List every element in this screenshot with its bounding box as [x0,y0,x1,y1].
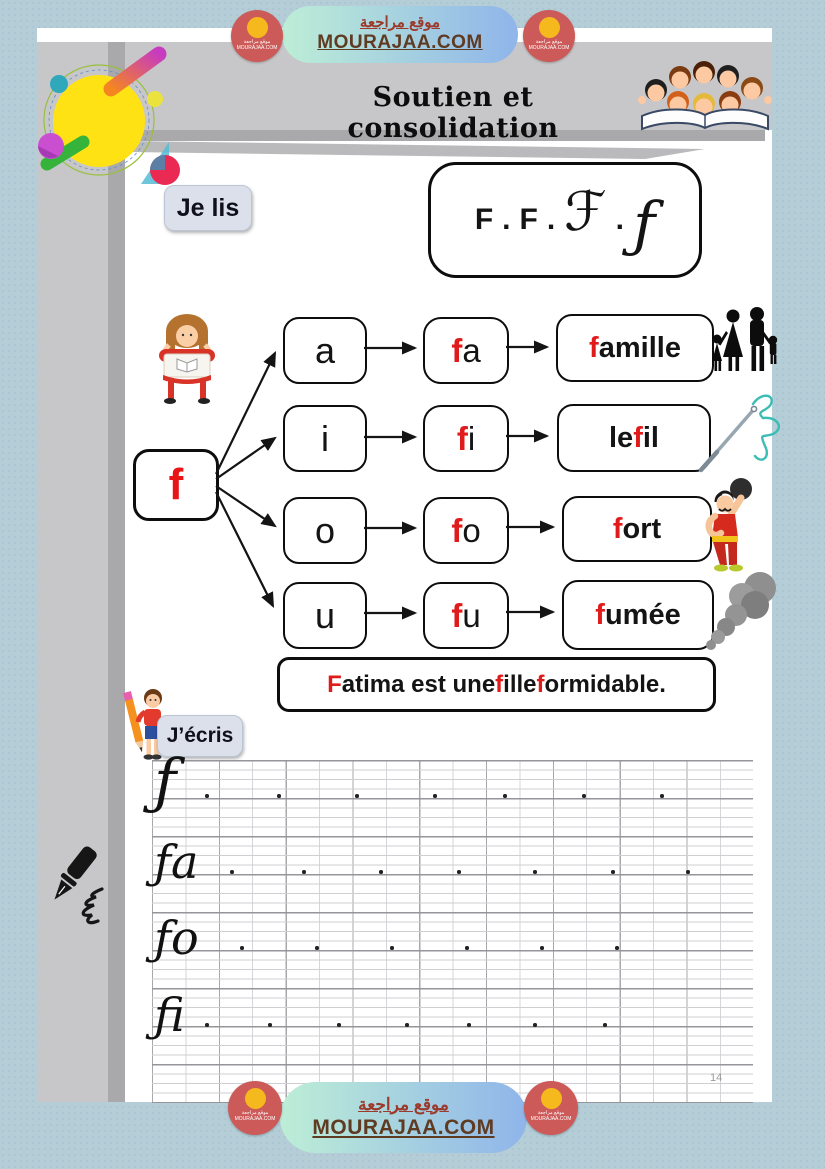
text-segment: f [451,512,462,550]
section-label-je-lis: Je lis [164,185,252,231]
trace-dot [660,794,664,798]
practice-letter-f: ƒ [154,752,176,812]
strongman-lifting-weight-icon [697,476,763,574]
text-segment: f [633,422,643,455]
logo-sun-icon [247,17,268,38]
text-segment: i [468,420,475,458]
triangle-circle-decoration-icon [139,140,184,188]
vowel-box-o: o [283,497,367,564]
trace-dot [405,1023,409,1027]
site-link[interactable]: MOURAJAA.COM [312,1115,494,1140]
text-segment: o [462,512,480,550]
trace-dot [540,946,544,950]
site-logo-badge: موقع مراجعة MOURAJAA.COM [523,10,575,62]
logo-text-en: MOURAJAA.COM [231,45,283,51]
text-segment: f [613,513,623,546]
footer-site-banner: موقع مراجعة MOURAJAA.COM [280,1082,527,1153]
trace-dot [302,870,306,874]
site-logo-badge: موقع مراجعة MOURAJAA.COM [231,10,283,62]
site-logo-badge: موقع مراجعة MOURAJAA.COM [228,1081,282,1135]
logo-sun-icon [245,1088,266,1109]
page-title: Soutien et consolidation [268,82,638,144]
handwriting-grid[interactable]: ƒƒaƒoƒi [152,760,753,1103]
word-box-fumee: fumée [562,580,714,650]
vowel-box-a: a [283,317,367,384]
text-segment: a [462,332,480,370]
root-letter-box: f [133,449,219,521]
children-reading-open-book-icon [634,58,776,138]
text-segment: a [599,332,615,365]
practice-letter-fa: ƒa [154,839,198,885]
practice-letter-fo: ƒo [154,915,199,961]
trace-dot [615,946,619,950]
trace-dot [582,794,586,798]
text-segment: mille [615,332,681,365]
text-segment: f [595,599,605,632]
letter-form-script-low: ƒ [633,190,655,260]
trace-dot [467,1023,471,1027]
separator-dot: . [616,203,624,237]
letter-form-script-cap: ℱ [564,180,606,243]
trace-dot [230,870,234,874]
family-silhouette-icon [710,307,778,389]
site-link[interactable]: MOURAJAA.COM [317,32,482,55]
text-segment: F [327,671,342,699]
vowel-box-i: i [283,405,367,472]
syllable-box-fu: fu [423,582,509,649]
trace-dot [433,794,437,798]
girl-reading-at-desk-icon [147,311,235,405]
header-site-banner: موقع مراجعة MOURAJAA.COM [282,6,518,63]
trace-dot [465,946,469,950]
syllable-box-fo: fo [423,497,509,564]
fountain-pen-writing-icon [44,843,116,947]
text-segment: u [462,597,480,635]
text-segment: rt [640,513,661,546]
site-name-arabic[interactable]: موقع مراجعة [360,14,440,32]
syllable-box-fa: fa [423,317,509,384]
trace-dot [337,1023,341,1027]
word-box-fort: fort [562,496,712,562]
trace-dot [533,1023,537,1027]
letter-form-print: F [519,203,537,237]
separator-dot: . [547,203,555,237]
root-letter: f [169,460,184,510]
trace-dot [205,1023,209,1027]
syllable-box-fi: fi [423,405,509,472]
sentence-box: Fatima est une fille formidable. [277,657,716,712]
trace-dot [268,1023,272,1027]
text-segment: o [623,513,641,546]
trace-dot [686,870,690,874]
logo-text-en: MOURAJAA.COM [523,45,575,51]
trace-dot [611,870,615,874]
logo-text-en: MOURAJAA.COM [524,1116,578,1122]
text-segment: u [605,599,623,632]
text-segment: le [609,422,633,455]
trace-dot [390,946,394,950]
word-box-le-fil: le fil [557,404,711,472]
text-segment: f [537,671,545,699]
text-segment: mée [623,599,681,632]
text-segment: f [495,671,503,699]
letter-forms-box: F.F.ℱ.ƒ [428,162,702,278]
worksheet-page: موقع مراجعة MOURAJAA.COM موقع مراجعة MOU… [0,0,825,1169]
text-segment: il [643,422,659,455]
site-logo-badge: موقع مراجعة MOURAJAA.COM [524,1081,578,1135]
text-segment: f [451,332,462,370]
trace-dot [277,794,281,798]
text-segment: atima est une [342,671,495,699]
logo-sun-icon [539,17,560,38]
practice-letter-fi: ƒi [154,992,185,1038]
text-segment: f [457,420,468,458]
text-segment: f [451,597,462,635]
logo-text-en: MOURAJAA.COM [228,1116,282,1122]
vowel-box-u: u [283,582,367,649]
logo-sun-icon [541,1088,562,1109]
trace-dot [315,946,319,950]
text-segment: ille [503,671,536,699]
trace-dot [603,1023,607,1027]
trace-dot [457,870,461,874]
text-segment: ormidable. [545,671,666,699]
word-box-famille: famille [556,314,714,382]
trace-dot [355,794,359,798]
trace-dot [379,870,383,874]
site-name-arabic[interactable]: موقع مراجعة [358,1095,449,1115]
trace-dot [503,794,507,798]
trace-dot [533,870,537,874]
smoke-plume-icon [702,570,782,654]
letter-form-print: F [475,203,493,237]
needle-and-thread-icon [697,390,789,476]
page-number: 14 [710,1072,722,1084]
trace-dot [240,946,244,950]
separator-dot: . [502,203,510,237]
text-segment: f [589,332,599,365]
trace-dot [205,794,209,798]
